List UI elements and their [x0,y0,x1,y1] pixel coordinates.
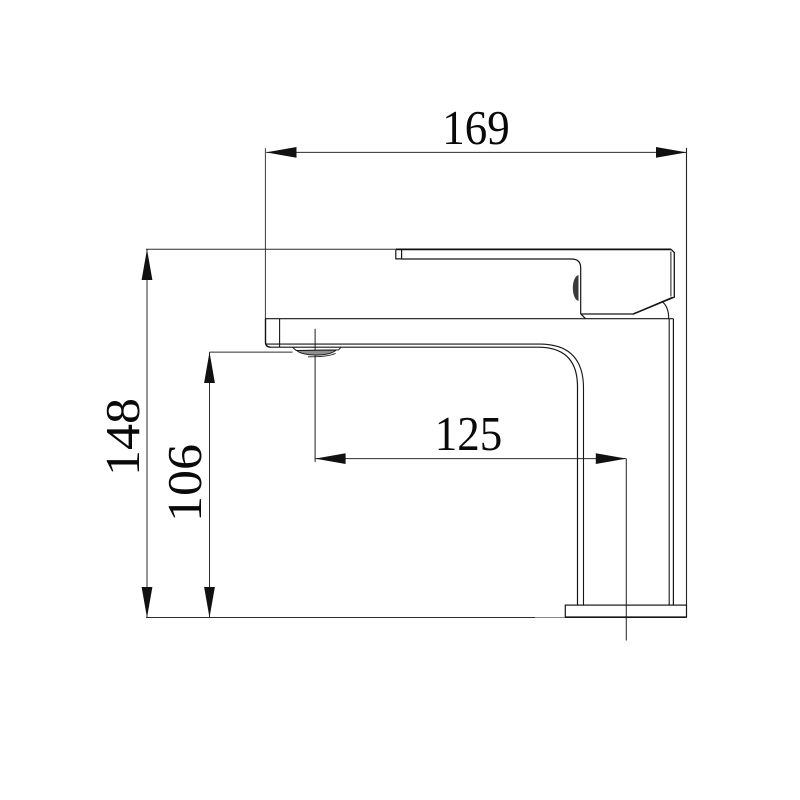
svg-text:106: 106 [159,444,212,522]
svg-text:169: 169 [442,102,510,155]
svg-text:125: 125 [435,408,503,461]
svg-text:148: 148 [97,398,150,476]
